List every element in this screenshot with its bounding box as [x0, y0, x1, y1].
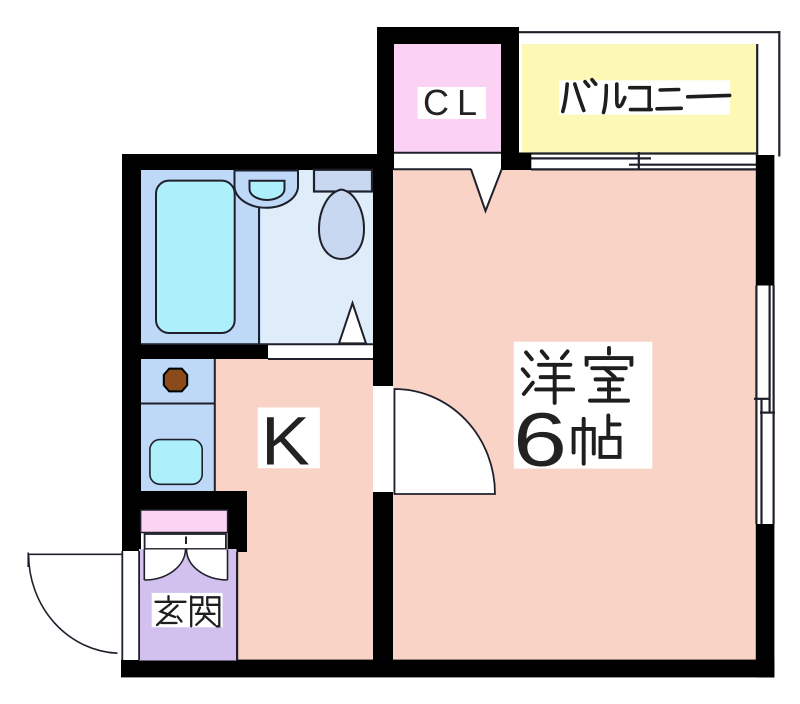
svg-text:CL: CL [423, 82, 485, 123]
svg-text:K: K [261, 403, 310, 480]
svg-text:6: 6 [513, 398, 567, 482]
